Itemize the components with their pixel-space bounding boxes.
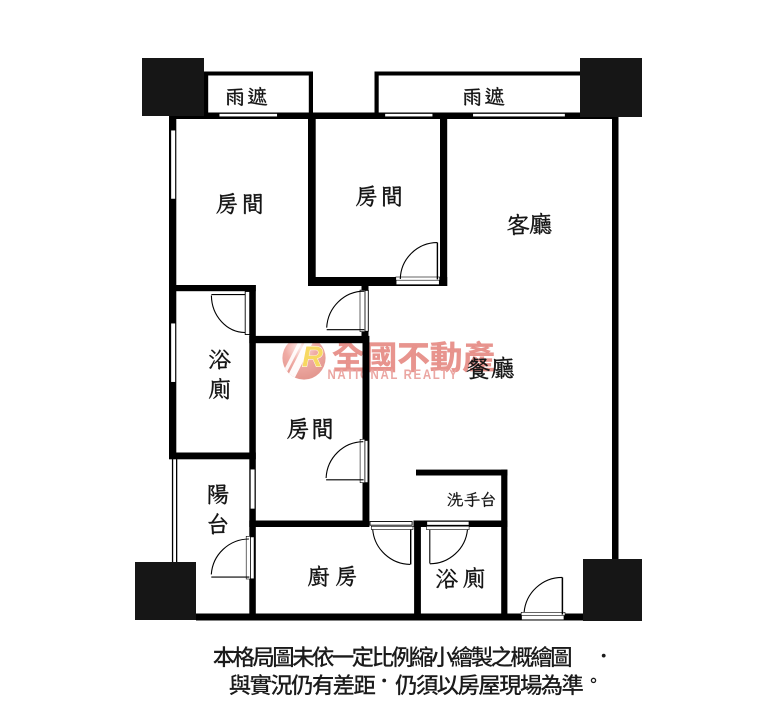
svg-text:R: R [302,341,323,373]
svg-text:NATIONAL REALTY: NATIONAL REALTY [328,366,459,382]
